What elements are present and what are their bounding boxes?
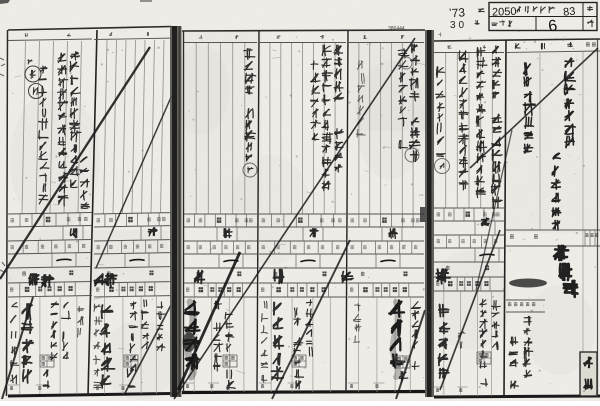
svg-text:30: 30 xyxy=(450,20,467,31)
svg-text:83: 83 xyxy=(563,5,576,18)
svg-text:2050: 2050 xyxy=(492,6,517,19)
svg-text:386444: 386444 xyxy=(388,26,405,32)
svg-text:ʼ73: ʼ73 xyxy=(449,5,466,20)
